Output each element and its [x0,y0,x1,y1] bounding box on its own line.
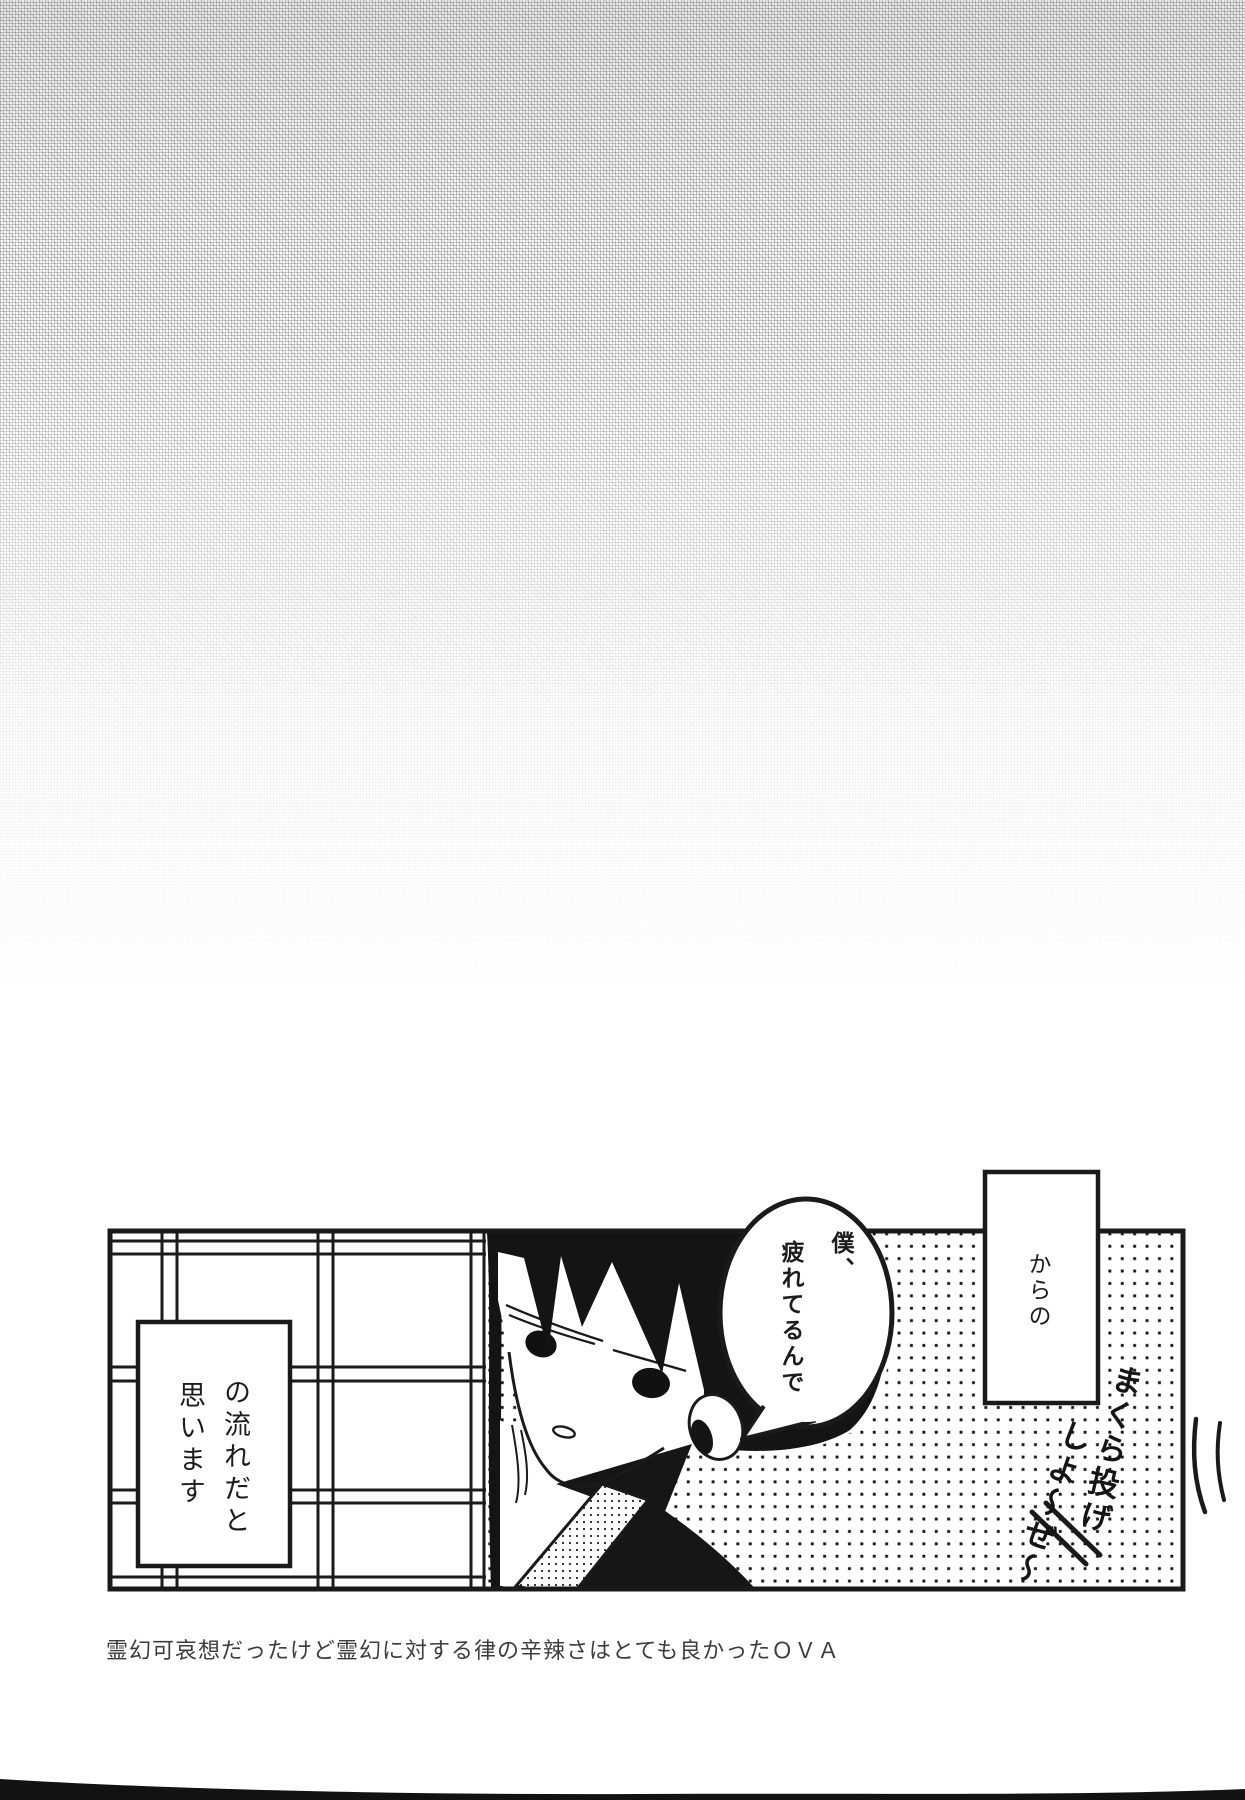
narration-box-left [138,1322,290,1566]
narration-text-karano: からの [1025,1252,1048,1330]
narration-text-left-col1: の流れだと [221,1378,248,1538]
manga-page: からの の流れだと 思います 僕、 疲れてるんで まくら投げ しよ〜ぜ〜 霊幻可… [0,0,1245,1800]
speech-text-col2: 疲れてるんで [778,1240,801,1396]
speech-text-col1: 僕、 [828,1231,851,1283]
panel-illustration [0,0,1245,1800]
afterword-caption: 霊幻可哀想だったけど霊幻に対する律の辛辣さはとても良かったＯＶＡ [106,1633,840,1665]
page-bottom-edge-shadow [0,1779,1245,1800]
narration-text-left-col2: 思います [176,1381,203,1509]
